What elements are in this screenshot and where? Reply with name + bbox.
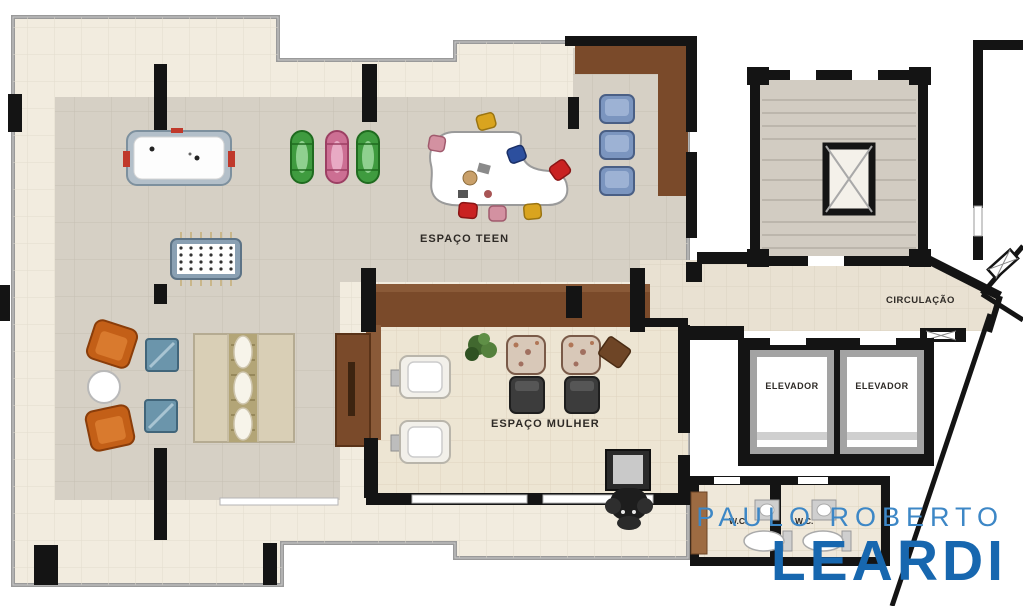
salon-chair-icon xyxy=(391,356,450,398)
kayak-green-icon xyxy=(291,131,313,183)
round-table-icon xyxy=(88,371,120,403)
foosball-table-icon xyxy=(171,232,241,286)
room-label-elevador-left: ELEVADOR xyxy=(750,381,834,391)
room-label-circulacao: CIRCULAÇÃO xyxy=(886,295,955,306)
brand-line-2: LEARDI xyxy=(696,533,1007,590)
elevator-left-cab xyxy=(750,350,834,454)
kayak-pink-icon xyxy=(326,131,348,183)
salon-chair-icon xyxy=(391,421,450,463)
room-label-elevador-right: ELEVADOR xyxy=(840,381,924,391)
air-hockey-table-icon xyxy=(123,128,235,185)
brand-logo: PAULO ROBERTO LEARDI xyxy=(696,504,1007,590)
stairwell xyxy=(747,67,931,267)
room-label-espaco-mulher: ESPAÇO MULHER xyxy=(491,418,600,430)
brand-line-1: PAULO ROBERTO xyxy=(696,504,1004,531)
window-icon xyxy=(974,206,982,236)
floor-plan: ESPAÇO TEEN ESPAÇO MULHER CIRCULAÇÃO ELE… xyxy=(0,0,1023,606)
daybed-icon xyxy=(194,334,294,442)
orange-armchair-icon xyxy=(84,404,135,452)
elevator-block xyxy=(738,336,934,466)
kayak-green2-icon xyxy=(357,131,379,183)
blue-armchair-icon xyxy=(600,95,634,195)
hatch-bar xyxy=(988,250,1018,279)
elevator-right-cab xyxy=(840,350,924,454)
room-label-espaco-teen: ESPAÇO TEEN xyxy=(420,233,509,245)
